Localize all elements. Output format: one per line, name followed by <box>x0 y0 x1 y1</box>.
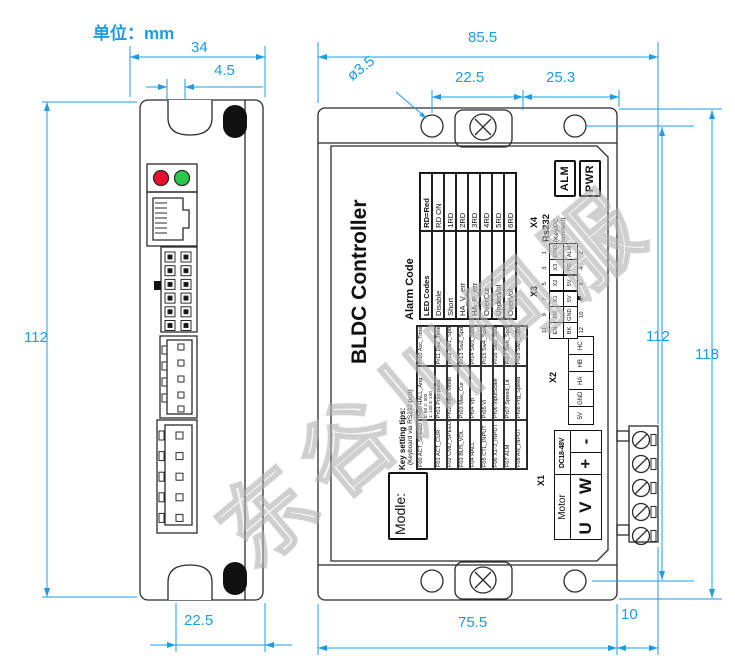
signal-connector-inner <box>167 340 192 414</box>
pin-cell: X3 <box>549 259 564 276</box>
side-terminal-block <box>617 426 658 545</box>
phillips-screw-top-icon <box>470 114 496 140</box>
table-row: OverVol6RD <box>504 173 516 319</box>
phase-v: V <box>571 497 601 518</box>
dc-voltage-label: DC18-48V <box>555 432 570 475</box>
table-cell: Pr07 Speed_Lit <box>504 366 516 420</box>
led-labels: ALM PWR <box>554 160 604 197</box>
dim-front-total-width: 85.5 <box>468 29 497 46</box>
mounting-hole-top-right <box>564 115 586 137</box>
table-cell: RD=Red <box>420 173 432 231</box>
phase-u: U <box>571 518 601 539</box>
pin-header-pins <box>165 252 191 331</box>
pin-cell: 5V <box>563 275 578 292</box>
alarm-code-title: Alarm Code <box>404 170 416 320</box>
table-row: F05 CTL_INPUTPr05 ViPr15 Sw4_Spd <box>481 326 493 469</box>
table-cell: Pr13 Sw2_Spd <box>458 326 470 366</box>
alm-led-label: ALM <box>554 160 576 197</box>
x3-pin-row-2: BKGND5V5VPGALM <box>564 243 578 338</box>
table-cell: F01 ACT_CUR <box>435 420 447 469</box>
table-cell: Pr08 Prg_Speed <box>516 366 528 420</box>
table-cell: LED Codes <box>420 231 432 319</box>
mounting-hole-bottom-right <box>564 570 586 592</box>
pin-cell: 4 <box>578 261 587 277</box>
bottom-mounting-notch <box>168 565 212 600</box>
terminal-slots <box>651 435 656 542</box>
pin-cell: BK <box>563 322 578 339</box>
connector-label-x4: X4 <box>529 217 539 228</box>
table-cell: 5RD <box>492 173 504 231</box>
rs232-note-line3: connect) <box>560 214 567 242</box>
table-row: LED CodesRD=Red <box>420 173 432 319</box>
connector-label-x2: X2 <box>548 372 558 383</box>
terminal-block-housing <box>157 420 197 533</box>
table-cell: F05 CTL_INPUT <box>481 420 493 469</box>
table-cell: Pr01 Pole pairs <box>435 366 447 420</box>
table-cell: Pr15 Sw4_Spd <box>481 326 493 366</box>
table-cell: Pr17 Sw6_Spd <box>504 326 516 366</box>
table-cell: Pr12 Sw1_Spd <box>447 326 459 366</box>
dim-front-inner-height: 112 <box>646 328 670 345</box>
model-field-box: Modle: <box>388 472 428 540</box>
top-slot <box>223 105 247 138</box>
table-cell: F08 AN_INPUT <box>516 420 528 469</box>
dim-flange-width: 10 <box>621 606 638 623</box>
bottom-slot <box>223 562 247 595</box>
table-cell: F04 HALL <box>470 420 482 469</box>
power-minus: - <box>571 431 601 453</box>
table-cell: F02 CMD_SPEED <box>447 420 459 469</box>
table-row: F04 HALLPr04 VpPr14 Sw3_Spd <box>470 326 482 469</box>
pin-cell: HC <box>568 337 594 356</box>
table-row: F02 CMD_SPEEDPr02 Input ModePr12 Sw1_Spd <box>447 326 459 469</box>
table-cell: UnderVol <box>492 231 504 319</box>
connector-label-x1: X1 <box>536 475 546 486</box>
pin-cell: ALM <box>563 243 578 260</box>
x3-pinout: 1197531 ENFRX1X2X3GND BKGND5V5VPGALM 121… <box>541 243 587 338</box>
pin1-marker <box>154 281 161 290</box>
pin-index-marker <box>577 296 581 300</box>
rj45-jack-icon <box>153 198 189 240</box>
table-row: F00 ACT_SPEEDPr00 HALL_Ang0: 60 2: 3001:… <box>417 326 435 469</box>
table-row: F01 ACT_CURPr01 Pole pairsPr11 Dec_Time <box>435 326 447 469</box>
pin-cell: PG <box>563 259 578 276</box>
rs232-label: Rs232 <box>542 214 553 242</box>
motor-label: Motor <box>555 475 570 539</box>
x1-header-row: Motor DC18-48V <box>555 431 571 539</box>
signal-connector-pins <box>162 344 184 412</box>
terminal-block-inner <box>165 425 192 525</box>
table-row: DisableRD ON <box>432 173 444 319</box>
pin-cell: 5V <box>568 407 594 426</box>
rj45-contacts <box>155 203 167 233</box>
table-cell: F00 ACT_SPEED <box>417 420 435 469</box>
table-cell: Pr06 InputScale <box>493 366 505 420</box>
mounting-hole-bottom-left <box>421 570 443 592</box>
dim-front-outer-height: 118 <box>695 346 719 363</box>
top-screw-tab <box>455 110 512 147</box>
table-cell: Pr03 Max_Cur <box>458 366 470 420</box>
dim-hole-right-offset: 25.3 <box>546 69 575 86</box>
key-settings-table: F00 ACT_SPEEDPr00 HALL_Ang0: 60 2: 3001:… <box>416 325 528 470</box>
table-cell: F06 X1-3_INPUT <box>493 420 505 469</box>
phillips-screw-bottom-icon <box>470 567 496 593</box>
pin-cell: HA <box>568 372 594 391</box>
table-row: UnderVol5RD <box>492 173 504 319</box>
pin-cell: FR <box>549 306 564 323</box>
connector-label-x3: X3 <box>529 286 539 297</box>
x1-pin-row: U V W + - <box>571 431 601 539</box>
dim-front-body-width: 75.5 <box>458 614 487 631</box>
alarm-code-block: Alarm Code LED CodesRD=RedDisableRD ONSh… <box>404 170 517 320</box>
x1-pinout: Motor DC18-48V U V W + - <box>554 430 602 540</box>
table-cell: HA_P_err <box>468 231 480 319</box>
product-label: BLDC Controller Modle: Key setting tips:… <box>348 158 608 548</box>
pin-cell: 2 <box>578 245 587 261</box>
table-cell: Pr16 Sw5_Spd <box>493 326 505 366</box>
table-row: F06 X1-3_INPUTPr06 InputScalePr16 Sw5_Sp… <box>493 326 505 469</box>
table-row: F03 BUS_VOLPr03 Max_CurPr13 Sw2_Spd <box>458 326 470 469</box>
mounting-hole-top-left <box>421 115 443 137</box>
table-cell: 6RD <box>504 173 516 231</box>
terminal-block-pins <box>159 431 183 522</box>
pin-cell: GND <box>563 306 578 323</box>
rs232-note-line2: (Key/PC <box>553 214 560 242</box>
table-row: F08 AN_INPUTPr08 Prg_SpeedPr18 Sw7_Spd <box>516 326 528 469</box>
green-led-icon <box>175 171 190 186</box>
table-cell: Pr14 Sw3_Spd <box>470 326 482 366</box>
x3-even-pin-numbers: 12108642 <box>578 243 587 338</box>
table-cell: Disable <box>432 231 444 319</box>
pin-cell: HB <box>568 354 594 373</box>
table-cell: Pr05 Vi <box>481 366 493 420</box>
table-cell: F03 BUS_VOL <box>458 420 470 469</box>
pin-cell: GND <box>549 243 564 260</box>
table-cell: OverVol <box>504 231 516 319</box>
pin-cell: 12 <box>578 323 587 339</box>
x2-pinout: 5VGNDHAHBHC <box>568 337 594 425</box>
table-cell: RD ON <box>432 173 444 231</box>
alarm-code-table: LED CodesRD=RedDisableRD ONShort1RDHA_V_… <box>419 172 517 320</box>
dim-left-height: 112 <box>24 329 48 346</box>
key-tips-heading: Key setting tips: <box>398 322 407 470</box>
table-cell: Pr02 Input Mode <box>447 366 459 420</box>
table-cell: Pr11 Dec_Time <box>435 326 447 366</box>
table-row: HA_P_err3RD <box>468 173 480 319</box>
pin-cell: 6 <box>578 276 587 292</box>
table-cell: F07 ALM <box>504 420 516 469</box>
power-plus: + <box>571 453 601 475</box>
x4-rs232-note: Rs232 (Key/PC connect) <box>542 214 568 242</box>
dim-hole-left-offset: 22.5 <box>455 69 484 86</box>
table-cell: Pr18 Sw7_Spd <box>516 326 528 366</box>
key-tips-subheading: (Keyboard via RS232 port) <box>407 322 414 470</box>
table-cell: 1RD <box>444 173 456 231</box>
left-view <box>140 100 263 600</box>
unit-note: 单位：mm <box>93 19 174 44</box>
x3-pin-row-1: ENFRX1X2X3GND <box>550 243 564 338</box>
top-mounting-notch <box>168 100 212 135</box>
table-row: F07 ALMPr07 Speed_LitPr17 Sw6_Spd <box>504 326 516 469</box>
red-led-icon <box>154 171 169 186</box>
pin-cell: EN <box>549 322 564 339</box>
pwr-led-label: PWR <box>579 160 601 197</box>
table-cell: 2RD <box>456 173 468 231</box>
table-cell: Short <box>444 231 456 319</box>
dim-left-bottom: 22.5 <box>184 612 213 629</box>
key-setting-tips-block: Key setting tips: (Keyboard via RS232 po… <box>398 322 528 470</box>
table-row: HA_V_err2RD <box>456 173 468 319</box>
pin-cell: X1 <box>549 291 564 308</box>
technical-drawing-canvas: BLDC Controller Modle: Key setting tips:… <box>0 0 735 662</box>
table-cell: OverCur <box>480 231 492 319</box>
terminal-screws <box>633 432 650 545</box>
table-cell: Pr10 Acc_Time <box>417 326 435 366</box>
table-row: Short1RD <box>444 173 456 319</box>
table-cell: Pr00 HALL_Ang0: 60 2: 3001: 120 3: 240 <box>417 366 435 420</box>
dim-left-width: 34 <box>191 39 208 56</box>
table-cell: HA_V_err <box>456 231 468 319</box>
dim-slot-offset: 4.5 <box>214 62 235 79</box>
pin-cell: 10 <box>578 307 587 323</box>
pin-cell: X2 <box>549 275 564 292</box>
model-field-label: Modle: <box>392 493 408 535</box>
table-cell: Pr04 Vp <box>470 366 482 420</box>
phase-w: W <box>571 475 601 496</box>
page-title: BLDC Controller <box>348 200 372 365</box>
table-row: OverCur4RD <box>480 173 492 319</box>
pin-cell: GND <box>568 389 594 408</box>
table-cell: 4RD <box>480 173 492 231</box>
table-cell: 3RD <box>468 173 480 231</box>
